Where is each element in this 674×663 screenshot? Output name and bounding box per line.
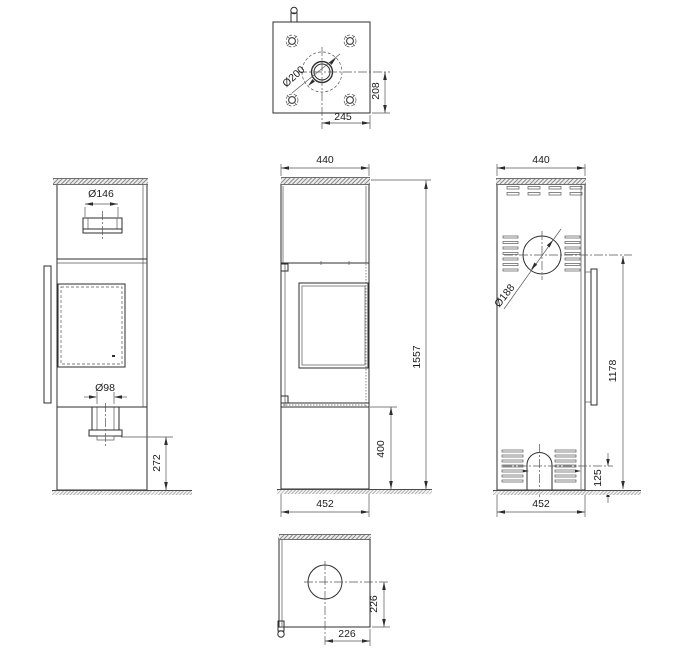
logo-mark — [112, 355, 115, 357]
dim-label-208: 208 — [371, 82, 382, 100]
top-view — [273, 7, 390, 129]
dim-label-272: 272 — [152, 454, 163, 472]
top-vent-slots — [507, 187, 582, 196]
dim-label-air-inlet-diameter: Ø98 — [95, 383, 115, 394]
door-edge-profile — [44, 266, 51, 403]
door-hinge-bottom — [281, 396, 288, 403]
dim-label-front-width-452: 452 — [316, 499, 334, 510]
door-glass — [299, 283, 368, 368]
dim-label-top-collar-diameter: Ø146 — [88, 189, 114, 200]
outlet-vent-slots — [503, 236, 580, 271]
door-edge-rear — [585, 269, 597, 405]
hatch-top-plate-side — [53, 178, 148, 185]
control-knob-top — [291, 7, 297, 22]
door-hinge-top — [281, 264, 288, 271]
dim-label-226-vertical: 226 — [369, 595, 380, 613]
dim-label-226-horizontal: 226 — [338, 629, 356, 640]
hatch-top-plate-rear — [496, 178, 586, 185]
dim-label-rear-width-452: 452 — [532, 499, 550, 510]
hatch-bottom-view-edge — [279, 534, 371, 540]
floor-hatch-front — [277, 489, 432, 494]
dim-label-125: 125 — [593, 469, 604, 487]
dim-label-245: 245 — [334, 112, 352, 123]
top-collar-side — [83, 211, 122, 239]
airflow-arrow-right — [575, 470, 581, 473]
dim-label-rear-width-440: 440 — [532, 155, 550, 166]
air-inlet-pipe — [89, 403, 122, 446]
rear-view — [497, 164, 632, 517]
dim-label-1557: 1557 — [412, 345, 423, 368]
dim-label-1178: 1178 — [608, 360, 619, 383]
dim-label-front-width-440: 440 — [316, 155, 334, 166]
front-door — [281, 261, 369, 406]
bottom-view — [278, 538, 390, 647]
dim-label-400: 400 — [376, 440, 387, 458]
floor-hatch-rear — [493, 490, 641, 495]
floor-hatch-side — [52, 490, 192, 495]
side-glass — [58, 284, 125, 367]
hatch-top-plate-front — [281, 177, 370, 185]
airflow-arrow-left — [523, 470, 529, 473]
side-view — [44, 183, 173, 490]
front-view — [281, 164, 431, 517]
drawing-linework — [0, 0, 674, 663]
rear-flue-outlet — [504, 231, 632, 280]
technical-drawing-canvas: Ø200 208 245 Ø146 Ø98 272 440 1557 400 4… — [0, 0, 674, 663]
